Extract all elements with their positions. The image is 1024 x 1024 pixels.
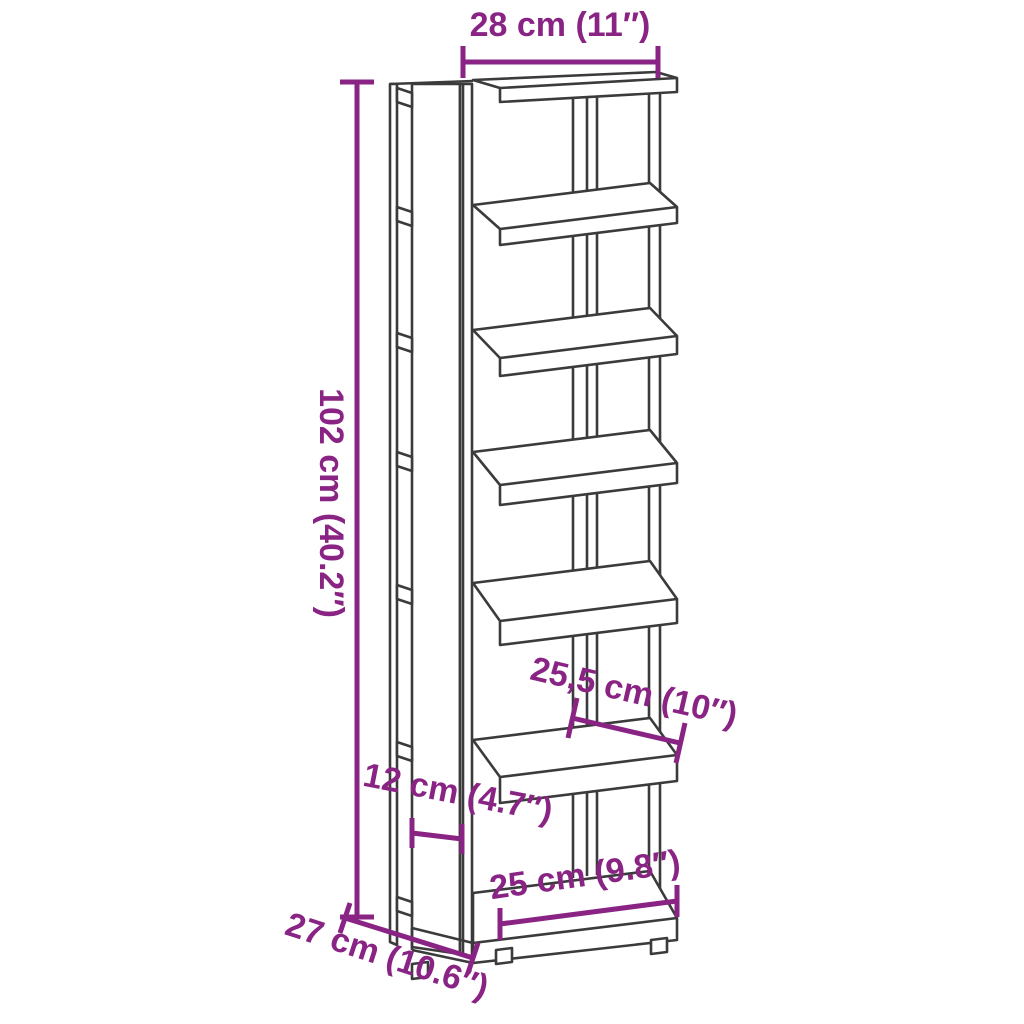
dimension-annotations: 28 cm (11″) 102 cm (40.2″) 25,5 cm (10″)… xyxy=(281,6,741,1007)
shelf-board-2 xyxy=(473,183,677,245)
shoe-rack-line-art xyxy=(390,72,677,979)
shelf-board-3 xyxy=(473,308,677,376)
dimension-top-width: 28 cm (11″) xyxy=(463,6,658,78)
foot-front-left xyxy=(496,948,512,964)
shelf-board-5 xyxy=(473,561,677,645)
furniture-dimension-diagram: 28 cm (11″) 102 cm (40.2″) 25,5 cm (10″)… xyxy=(0,0,1024,1024)
shelf-board-4 xyxy=(473,430,677,505)
dimension-height-label: 102 cm (40.2″) xyxy=(312,388,350,618)
diagram-canvas: 28 cm (11″) 102 cm (40.2″) 25,5 cm (10″)… xyxy=(0,0,1024,1024)
foot-right xyxy=(651,938,667,954)
dimension-top-width-label: 28 cm (11″) xyxy=(470,6,651,44)
